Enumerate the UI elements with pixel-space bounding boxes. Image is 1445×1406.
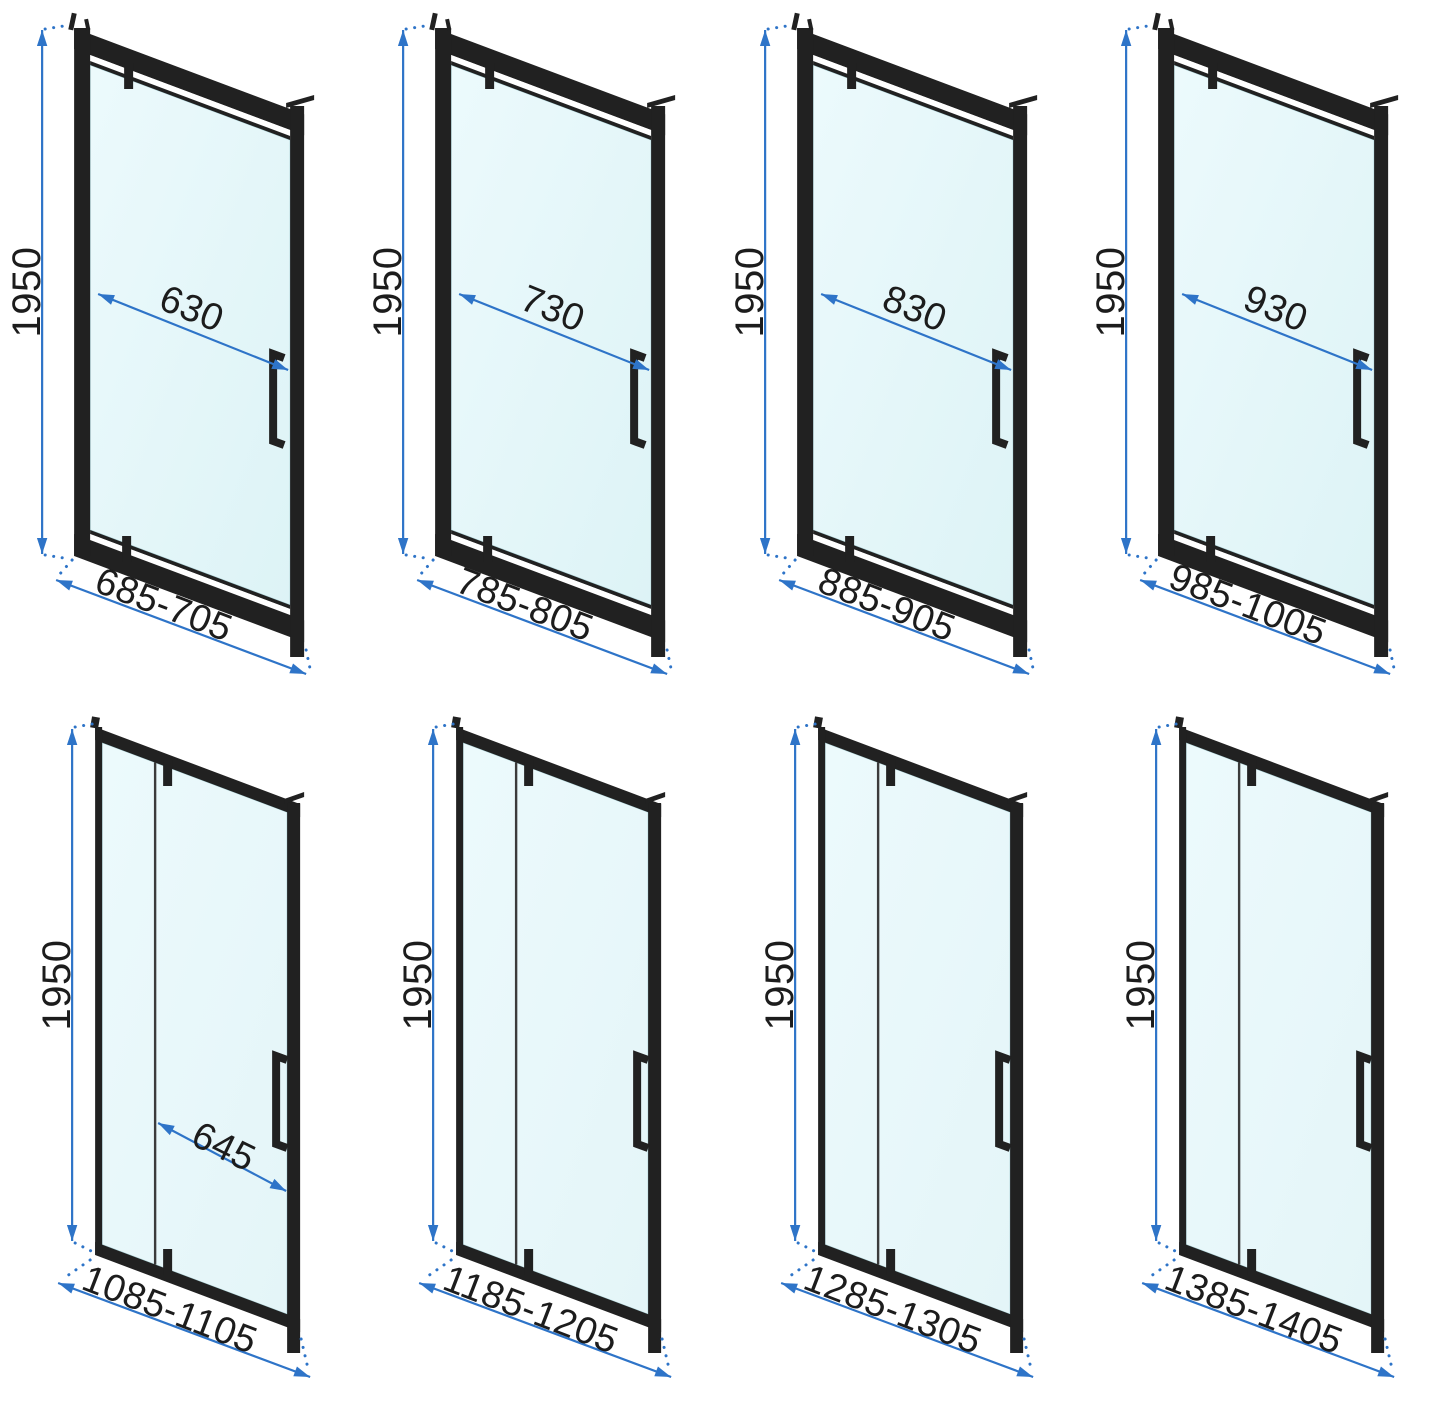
- profile-end-stub: [451, 716, 461, 728]
- glass-panel: [813, 65, 1013, 605]
- door-technical-drawing: 19501185-1205: [361, 703, 722, 1406]
- mounting-clip: [1247, 1249, 1256, 1275]
- glass-panel: [463, 743, 648, 1315]
- door-technical-drawing: 1950930985-1005: [1084, 0, 1445, 703]
- arrowhead-icon: [1377, 1367, 1394, 1378]
- height-dimension: 1950: [366, 25, 431, 559]
- arrowhead-icon: [37, 538, 47, 554]
- left-wall-profile: [797, 28, 813, 556]
- arrowhead-icon: [37, 30, 47, 46]
- height-dimension: 1950: [396, 724, 453, 1251]
- door-diagram: 1950830885-905: [723, 0, 1084, 703]
- extension-dots: [1129, 555, 1154, 559]
- left-wall-profile: [95, 727, 102, 1255]
- extension-dots: [301, 1339, 308, 1369]
- mounting-clip: [163, 760, 172, 786]
- arrowhead-icon: [1012, 664, 1029, 675]
- arrowhead-icon: [56, 580, 73, 591]
- profile-end-stub: [68, 13, 76, 31]
- mounting-clip: [524, 1249, 533, 1275]
- door-diagram: 19501385-1405: [1084, 703, 1445, 1406]
- mounting-clip: [485, 63, 494, 89]
- extension-dots: [1159, 724, 1176, 727]
- arrowhead-icon: [67, 1225, 77, 1241]
- extension-dots: [1142, 560, 1156, 576]
- door-diagram: 19501285-1305: [723, 703, 1084, 1406]
- extension-dots: [662, 1339, 669, 1369]
- mounting-clip: [886, 1249, 895, 1275]
- right-jamb-profile: [651, 106, 665, 657]
- left-wall-profile: [456, 727, 463, 1255]
- profile-end-stub: [90, 716, 100, 728]
- arrowhead-icon: [1151, 729, 1161, 745]
- arrowhead-icon: [1140, 580, 1157, 591]
- right-jamb-profile: [1013, 106, 1027, 657]
- door-technical-drawing: 1950730785-805: [361, 0, 722, 703]
- extension-dots: [1129, 25, 1154, 29]
- glass-panel: [1186, 743, 1371, 1315]
- mounting-clip: [1247, 760, 1256, 786]
- glass-panel: [825, 743, 1010, 1315]
- height-dimension-label: 1950: [1119, 940, 1163, 1031]
- door-diagram: 1950930985-1005: [1084, 0, 1445, 703]
- height-dimension-label: 1950: [35, 940, 79, 1031]
- extension-dots: [406, 25, 431, 29]
- door-technical-drawing: 19506451085-1105: [0, 703, 361, 1406]
- extension-dots: [58, 560, 72, 576]
- extension-dots: [306, 650, 310, 669]
- arrowhead-icon: [293, 1367, 310, 1378]
- arrowhead-icon: [398, 538, 408, 554]
- extension-dots: [1029, 650, 1033, 669]
- extension-dots: [798, 1243, 814, 1251]
- extension-dots: [75, 724, 92, 727]
- arrowhead-icon: [289, 664, 306, 675]
- left-wall-profile: [1158, 28, 1174, 556]
- extension-dots: [436, 1243, 452, 1251]
- mounting-clip: [124, 63, 133, 89]
- height-dimension: 1950: [35, 724, 92, 1251]
- right-jamb-profile: [1371, 803, 1384, 1353]
- arrowhead-icon: [58, 1283, 75, 1294]
- height-dimension-label: 1950: [366, 247, 410, 338]
- arrowhead-icon: [789, 729, 799, 745]
- extension-dots: [406, 555, 431, 559]
- arrowhead-icon: [1373, 664, 1390, 675]
- left-wall-profile: [74, 28, 90, 556]
- height-dimension-label: 1950: [1089, 247, 1133, 338]
- extension-dots: [798, 724, 815, 727]
- profile-end-stub: [430, 13, 438, 31]
- glass-panel: [90, 65, 290, 605]
- extension-dots: [1390, 650, 1394, 669]
- right-jamb-profile: [1010, 803, 1023, 1353]
- height-dimension: 1950: [1119, 724, 1176, 1251]
- mounting-clip: [845, 536, 854, 562]
- arrowhead-icon: [655, 1367, 672, 1378]
- extension-dots: [45, 25, 70, 29]
- height-dimension-label: 1950: [758, 940, 802, 1031]
- mounting-clip: [524, 760, 533, 786]
- extension-dots: [1385, 1339, 1392, 1369]
- arrowhead-icon: [779, 580, 796, 591]
- profile-end-stub: [1152, 13, 1160, 31]
- arrowhead-icon: [1121, 30, 1131, 46]
- door-technical-drawing: 1950630685-705: [0, 0, 361, 703]
- right-jamb-profile: [648, 803, 661, 1353]
- profile-end-stub: [791, 13, 799, 31]
- arrowhead-icon: [1142, 1283, 1159, 1294]
- extension-dots: [667, 650, 671, 669]
- arrowhead-icon: [428, 1225, 438, 1241]
- arrowhead-icon: [428, 729, 438, 745]
- height-dimension-label: 1950: [396, 940, 440, 1031]
- glass-panel: [451, 65, 651, 605]
- shower-door-size-diagrams: 1950630685-705 1950730785-805 1950830885…: [0, 0, 1445, 1406]
- door-diagram: 19506451085-1105: [0, 703, 361, 1406]
- extension-dots: [45, 555, 70, 559]
- arrowhead-icon: [759, 538, 769, 554]
- arrowhead-icon: [1151, 1225, 1161, 1241]
- arrowhead-icon: [781, 1283, 798, 1294]
- mounting-clip: [122, 536, 131, 562]
- extension-dots: [781, 560, 795, 576]
- mounting-clip: [1206, 536, 1215, 562]
- door-diagram: 19501185-1205: [361, 703, 722, 1406]
- door-diagram: 1950630685-705: [0, 0, 361, 703]
- height-dimension-label: 1950: [728, 247, 772, 338]
- extension-dots: [436, 724, 453, 727]
- mounting-clip: [483, 536, 492, 562]
- arrowhead-icon: [67, 729, 77, 745]
- height-dimension: 1950: [5, 25, 70, 559]
- left-wall-profile: [435, 28, 451, 556]
- door-technical-drawing: 1950830885-905: [723, 0, 1084, 703]
- height-dimension-label: 1950: [5, 247, 49, 338]
- extension-dots: [1024, 1339, 1031, 1369]
- mounting-clip: [847, 63, 856, 89]
- arrowhead-icon: [417, 580, 434, 591]
- arrowhead-icon: [651, 664, 668, 675]
- mounting-clip: [886, 760, 895, 786]
- right-jamb-profile: [287, 803, 300, 1353]
- extension-dots: [1159, 1243, 1175, 1251]
- arrowhead-icon: [1121, 538, 1131, 554]
- right-jamb-profile: [290, 106, 304, 657]
- mounting-clip: [163, 1249, 172, 1275]
- door-diagram: 1950730785-805: [361, 0, 722, 703]
- mounting-clip: [1208, 63, 1217, 89]
- arrowhead-icon: [1016, 1367, 1033, 1378]
- arrowhead-icon: [789, 1225, 799, 1241]
- arrowhead-icon: [419, 1283, 436, 1294]
- extension-dots: [768, 555, 793, 559]
- height-dimension: 1950: [1089, 25, 1154, 559]
- door-technical-drawing: 19501385-1405: [1084, 703, 1445, 1406]
- glass-panel: [1174, 65, 1374, 605]
- height-dimension: 1950: [758, 724, 815, 1251]
- extension-dots: [768, 25, 793, 29]
- left-wall-profile: [818, 727, 825, 1255]
- right-jamb-profile: [1374, 106, 1388, 657]
- arrowhead-icon: [398, 30, 408, 46]
- door-technical-drawing: 19501285-1305: [723, 703, 1084, 1406]
- profile-end-stub: [1174, 716, 1184, 728]
- extension-dots: [419, 560, 433, 576]
- arrowhead-icon: [759, 30, 769, 46]
- glass-panel: [102, 743, 287, 1315]
- left-wall-profile: [1179, 727, 1186, 1255]
- extension-dots: [75, 1243, 91, 1251]
- height-dimension: 1950: [728, 25, 793, 559]
- profile-end-stub: [813, 716, 823, 728]
